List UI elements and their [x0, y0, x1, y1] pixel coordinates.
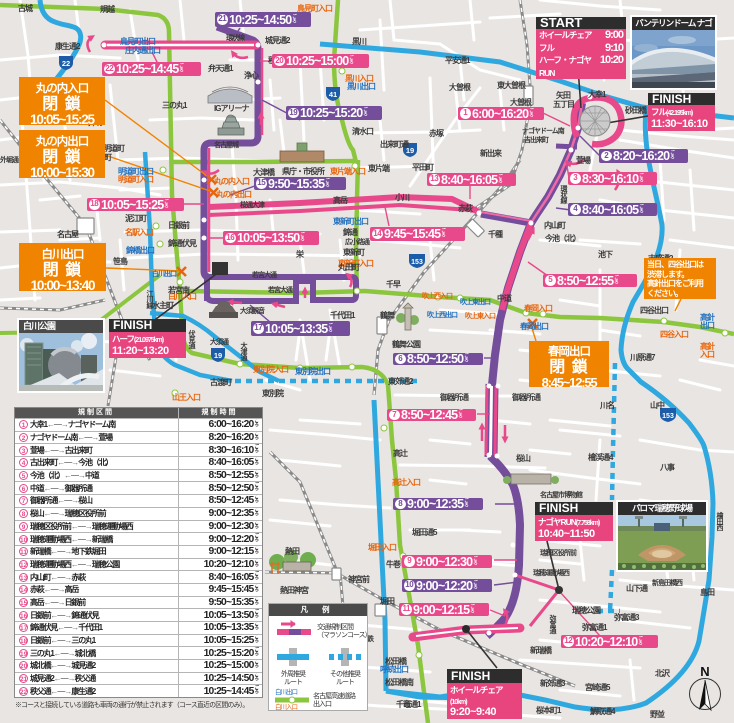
svg-text:153: 153 — [411, 259, 423, 266]
svg-text:41: 41 — [329, 90, 337, 99]
svg-text:外周推奨: 外周推奨 — [281, 669, 306, 678]
svg-text:N: N — [700, 664, 709, 679]
svg-text:その他推奨: その他推奨 — [330, 669, 361, 678]
svg-text:交通規制区間: 交通規制区間 — [317, 622, 354, 631]
svg-text:出入口: 出入口 — [313, 699, 332, 708]
svg-text:白川出口: 白川出口 — [275, 687, 298, 696]
svg-text:（マラソンコース）: （マラソンコース） — [317, 631, 367, 639]
svg-text:22: 22 — [62, 59, 70, 68]
svg-text:153: 153 — [662, 413, 674, 420]
svg-text:ルート: ルート — [336, 679, 354, 686]
svg-text:ルート: ルート — [284, 679, 302, 686]
svg-text:19: 19 — [214, 351, 222, 360]
svg-text:白川入口: 白川入口 — [275, 702, 298, 710]
svg-text:名古屋高速道路: 名古屋高速道路 — [313, 691, 356, 700]
